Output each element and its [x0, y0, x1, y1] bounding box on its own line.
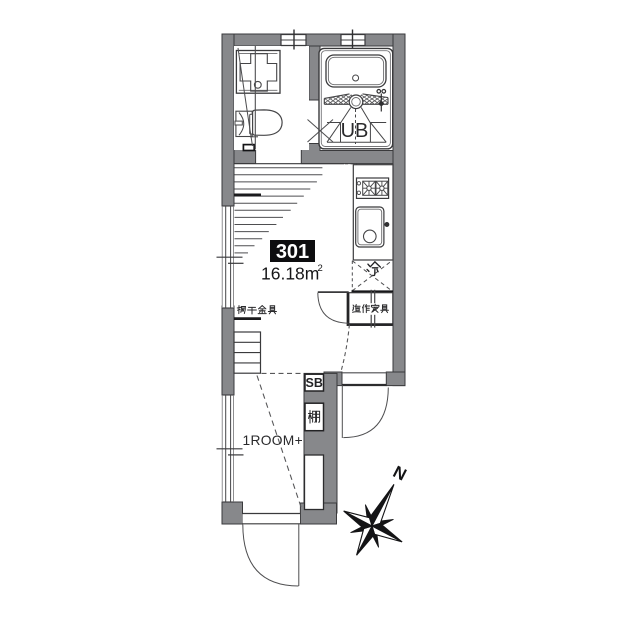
svg-text:N: N: [390, 462, 410, 485]
svg-text:16.18m: 16.18m: [261, 264, 319, 284]
svg-text:1ROOM+: 1ROOM+: [243, 433, 303, 448]
svg-text:UB: UB: [341, 120, 369, 142]
svg-text:2: 2: [318, 263, 323, 274]
svg-text:301: 301: [276, 241, 309, 263]
svg-text:SB: SB: [306, 376, 323, 390]
